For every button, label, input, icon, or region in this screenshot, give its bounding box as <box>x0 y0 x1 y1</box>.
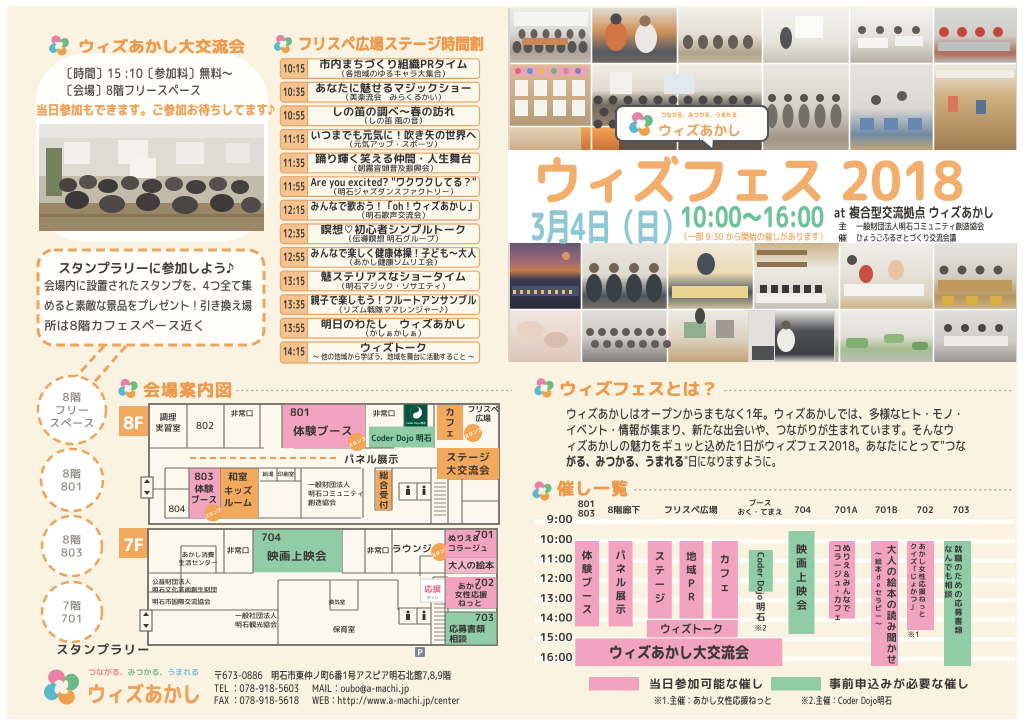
svg-text:（一部 9:30 から開始の催しがあります）: （一部 9:30 から開始の催しがあります） <box>680 231 827 244</box>
svg-text:示: 示 <box>615 603 626 617</box>
svg-text:広場: 広場 <box>475 414 491 424</box>
svg-text:会場内に設置されたスタンプを、4つ全て集: 会場内に設置されたスタンプを、4つ全て集 <box>44 277 252 294</box>
svg-text:〔会場〕8階フリースペース: 〔会場〕8階フリースペース <box>62 82 201 100</box>
svg-text:801: 801 <box>61 479 83 495</box>
svg-text:おく・てまえ: おく・てまえ <box>738 508 783 518</box>
svg-text:（美楽流会 みらくるかい）: （美楽流会 みらくるかい） <box>342 91 446 103</box>
svg-text:ブ: ブ <box>582 576 593 590</box>
svg-text:〒673-0886 明石市東仲ノ町6番1号アスピア明石北館7: 〒673-0886 明石市東仲ノ町6番1号アスピア明石北館7,8,9階 <box>214 669 451 683</box>
svg-text:ウィズあかし大交流会: ウィズあかし大交流会 <box>78 35 246 57</box>
svg-text:非常口: 非常口 <box>227 546 250 556</box>
svg-text:702: 702 <box>916 503 934 516</box>
svg-text:めると素敵な景品をプレゼント！引き換え場: めると素敵な景品をプレゼント！引き換え場 <box>44 297 252 314</box>
svg-text:（明石ジャズダンスファクトリー）: （明石ジャズダンスファクトリー） <box>330 185 458 197</box>
svg-text:12:35: 12:35 <box>283 226 305 242</box>
svg-text:R: R <box>688 591 695 605</box>
svg-text:ス: ス <box>582 603 593 617</box>
svg-text:換気室: 換気室 <box>329 598 346 606</box>
svg-text:ウィズフェスとは？: ウィズフェスとは？ <box>559 378 718 401</box>
svg-text:12:55: 12:55 <box>283 249 305 265</box>
svg-text:802: 802 <box>196 420 214 433</box>
svg-text:展: 展 <box>615 590 626 604</box>
svg-text:所は8階カフェスペース近く: 所は8階カフェスペース近く <box>44 317 206 334</box>
svg-text:804: 804 <box>168 502 185 515</box>
svg-text:ネット: ネット <box>427 595 439 601</box>
svg-text:701: 701 <box>61 611 83 627</box>
svg-text:ル: ル <box>615 576 626 590</box>
svg-text:給湯: 給湯 <box>262 470 274 478</box>
svg-text:事前申込みが必要な催し: 事前申込みが必要な催し <box>829 675 970 692</box>
svg-text:703: 703 <box>952 503 970 516</box>
svg-text:Coder Dojo 明石: Coder Dojo 明石 <box>372 432 432 444</box>
svg-text:創造協会: 創造協会 <box>308 498 336 508</box>
svg-text:スタンプラリーに参加しよう♪: スタンプラリーに参加しよう♪ <box>58 260 234 278</box>
svg-text:付: 付 <box>379 499 388 511</box>
svg-text:当日参加もできます。ご参加お待ちしてます♪: 当日参加もできます。ご参加お待ちしてます♪ <box>36 102 275 120</box>
svg-text:生活センター: 生活センター <box>179 559 218 568</box>
svg-text:ェ: ェ <box>834 613 842 623</box>
svg-text:体: 体 <box>582 549 593 563</box>
svg-text:※2.主催：Coder Dojo明石: ※2.主催：Coder Dojo明石 <box>801 694 892 708</box>
svg-text:保育室: 保育室 <box>333 625 356 635</box>
svg-text:がる、みつかる、うまれる: がる、みつかる、うまれる <box>566 453 684 471</box>
svg-text:ネ: ネ <box>615 563 626 577</box>
svg-text:（元気アップ・スポーツ）: （元気アップ・スポーツ） <box>346 138 442 150</box>
svg-text:ウィズあかし: ウィズあかし <box>658 121 741 140</box>
svg-text:映画上映会: 映画上映会 <box>267 548 327 564</box>
svg-text:801: 801 <box>290 406 310 420</box>
svg-text:15:00: 15:00 <box>540 629 573 645</box>
svg-text:と: と <box>919 611 926 620</box>
svg-text:10:55: 10:55 <box>283 108 305 124</box>
svg-text:明石観光協会: 明石観光協会 <box>235 620 277 630</box>
svg-text:P: P <box>417 647 423 659</box>
svg-text:※1: ※1 <box>907 630 919 640</box>
svg-text:ー: ー <box>582 590 593 604</box>
svg-text:応援: 応援 <box>424 583 442 595</box>
svg-text:コラージュ: コラージュ <box>448 542 488 554</box>
svg-text:実習室: 実習室 <box>155 422 181 434</box>
svg-text:7F: 7F <box>123 534 144 557</box>
svg-text:803: 803 <box>194 470 213 484</box>
svg-text:（朝霧音頭普及振興会）: （朝霧音頭普及振興会） <box>350 162 438 174</box>
svg-text:当日参加可能な催し: 当日参加可能な催し <box>649 675 764 692</box>
svg-text:WEB：http://www.a-machi.jp/cent: WEB：http://www.a-machi.jp/center <box>312 694 460 708</box>
svg-text:ー: ー <box>654 578 665 592</box>
svg-text:スペース: スペース <box>49 415 95 431</box>
svg-text:11:35: 11:35 <box>283 155 305 171</box>
svg-text:せ: せ <box>887 653 897 667</box>
svg-text:明石市国際交流協会: 明石市国際交流協会 <box>152 598 211 607</box>
svg-text:3月4日（日）: 3月4日（日） <box>530 200 685 252</box>
svg-text:13:55: 13:55 <box>283 320 305 336</box>
svg-text:（しの笛 風の音）: （しの笛 風の音） <box>360 115 426 127</box>
svg-text:うまれる: うまれる <box>167 668 199 678</box>
svg-text:カ: カ <box>720 553 731 567</box>
svg-text:13:15: 13:15 <box>283 273 305 289</box>
svg-text:フリスペ広場ステージ時間割: フリスペ広場ステージ時間割 <box>298 34 484 56</box>
svg-text:〔時間〕15 :10〔参加料〕無料〜: 〔時間〕15 :10〔参加料〕無料〜 <box>62 65 233 83</box>
svg-text:ねっと: ねっと <box>458 597 483 609</box>
svg-text:非常口: 非常口 <box>231 409 254 419</box>
svg-text:大人の絵本: 大人の絵本 <box>448 560 494 572</box>
svg-text:主: 主 <box>838 221 847 233</box>
svg-text:Coder Dojo 明石: Coder Dojo 明石 <box>406 421 426 425</box>
svg-text:談: 談 <box>944 588 952 600</box>
svg-text:テ: テ <box>654 564 665 578</box>
svg-text:一般財団法人明石コミュニティ創造協会: 一般財団法人明石コミュニティ創造協会 <box>856 221 984 233</box>
svg-text:（明石マジック・ソサエティ）: （明石マジック・ソサエティ） <box>338 280 450 292</box>
svg-text:13:00: 13:00 <box>540 590 573 606</box>
svg-text:和室: 和室 <box>228 471 248 484</box>
svg-text:FAX ：078-918-5618: FAX ：078-918-5618 <box>214 694 299 708</box>
svg-text:ウィズトーク: ウィズトーク <box>660 621 723 637</box>
svg-text:704: 704 <box>261 531 281 545</box>
svg-text:相談: 相談 <box>449 632 467 645</box>
svg-text:つながる、みつかる、うまれる: つながる、みつかる、うまれる <box>661 110 737 119</box>
svg-text:"日になりますように。: "日になりますように。 <box>684 453 781 471</box>
svg-text:10:35: 10:35 <box>283 84 305 100</box>
svg-text:フ: フ <box>720 567 731 581</box>
svg-text:ひょうごふるさとづくり交流会議: ひょうごふるさとづくり交流会議 <box>856 232 956 244</box>
svg-text:12:15: 12:15 <box>283 202 305 218</box>
svg-text:11:00: 11:00 <box>540 551 573 567</box>
svg-text:14:00: 14:00 <box>540 609 573 625</box>
svg-text:14:15: 14:15 <box>283 344 305 360</box>
svg-text:ェ: ェ <box>445 428 455 441</box>
svg-text:会: 会 <box>796 597 807 613</box>
svg-text:9:00: 9:00 <box>547 511 573 527</box>
svg-text:12:00: 12:00 <box>540 570 573 586</box>
svg-text:11:15: 11:15 <box>283 131 305 147</box>
svg-text:16:00: 16:00 <box>540 649 573 665</box>
svg-text:域: 域 <box>686 564 697 578</box>
svg-text:類: 類 <box>954 624 962 636</box>
svg-text:803: 803 <box>578 507 596 520</box>
svg-text:非常口: 非常口 <box>373 409 396 419</box>
svg-text:（リズム戦隊ママレンジャー♪）: （リズム戦隊ママレンジャー♪） <box>335 303 452 315</box>
svg-text:催: 催 <box>838 232 847 244</box>
svg-text:ウィズあかし大交流会: ウィズあかし大交流会 <box>609 641 749 663</box>
svg-text:非常口: 非常口 <box>367 546 390 556</box>
svg-text:〜: 〜 <box>875 619 882 629</box>
svg-text:ステージ: ステージ <box>446 451 490 465</box>
svg-text:10:15: 10:15 <box>283 60 305 76</box>
svg-text:（かしぁかしぁ）: （かしぁかしぁ） <box>362 327 426 339</box>
svg-text:〜 他の地域から学ぼう、地域を舞台に活動すること 〜: 〜 他の地域から学ぼう、地域を舞台に活動すること 〜 <box>313 351 475 363</box>
svg-text:※1.主催：あかし女性応援ねっと: ※1.主催：あかし女性応援ねっと <box>654 694 772 708</box>
svg-text:フリスペ広場: フリスペ広場 <box>664 503 718 516</box>
svg-text:（各地域のゆるキャラ大集合）: （各地域のゆるキャラ大集合） <box>338 67 450 79</box>
svg-text:701A: 701A <box>834 503 857 516</box>
svg-text:ジ: ジ <box>654 592 665 606</box>
svg-text:704: 704 <box>794 503 812 516</box>
svg-text:スタンプラリー: スタンプラリー <box>56 641 151 658</box>
svg-text:8F: 8F <box>123 412 144 435</box>
svg-text:」: 」 <box>910 603 917 612</box>
svg-text:13:35: 13:35 <box>283 296 305 312</box>
svg-text:明石文化芸術創生財団: 明石文化芸術創生財団 <box>152 586 218 595</box>
svg-text:ス: ス <box>654 550 665 564</box>
svg-text:11:55: 11:55 <box>283 178 305 194</box>
svg-text:ウィズあかし: ウィズあかし <box>87 679 201 710</box>
svg-text:ェ: ェ <box>720 581 731 595</box>
svg-text:で: で <box>843 604 851 614</box>
svg-text:パ: パ <box>615 549 626 563</box>
svg-text:Coder Dojo: Coder Dojo <box>755 552 768 600</box>
svg-text:8階廊下: 8階廊下 <box>608 503 641 516</box>
svg-text:701B: 701B <box>875 503 898 516</box>
svg-text:ルーム: ルーム <box>224 497 253 510</box>
svg-text:験: 験 <box>582 563 593 577</box>
svg-text:大交流会: 大交流会 <box>446 464 490 478</box>
svg-text:10:00: 10:00 <box>540 531 573 547</box>
svg-text:（明石歌声交流会）: （明石歌声交流会） <box>358 209 430 221</box>
svg-text:みつかる、: みつかる、 <box>128 668 168 678</box>
svg-text:パネル展示: パネル展示 <box>344 453 399 467</box>
svg-text:P: P <box>688 577 695 591</box>
svg-text:※2: ※2 <box>754 624 766 634</box>
svg-text:（伝導瞑想 明石グループ）: （伝導瞑想 明石グループ） <box>344 233 442 245</box>
svg-text:地: 地 <box>686 550 697 564</box>
svg-text:ラウンジ: ラウンジ <box>392 543 432 556</box>
svg-text:803: 803 <box>61 545 83 561</box>
svg-text:（あかし健康ソムリエ会）: （あかし健康ソムリエ会） <box>346 256 442 268</box>
svg-text:つながる、: つながる、 <box>88 668 128 678</box>
svg-text:会場案内図: 会場案内図 <box>143 379 233 402</box>
svg-text:印刷室: 印刷室 <box>278 470 295 478</box>
svg-text:体験ブース: 体験ブース <box>293 423 353 439</box>
